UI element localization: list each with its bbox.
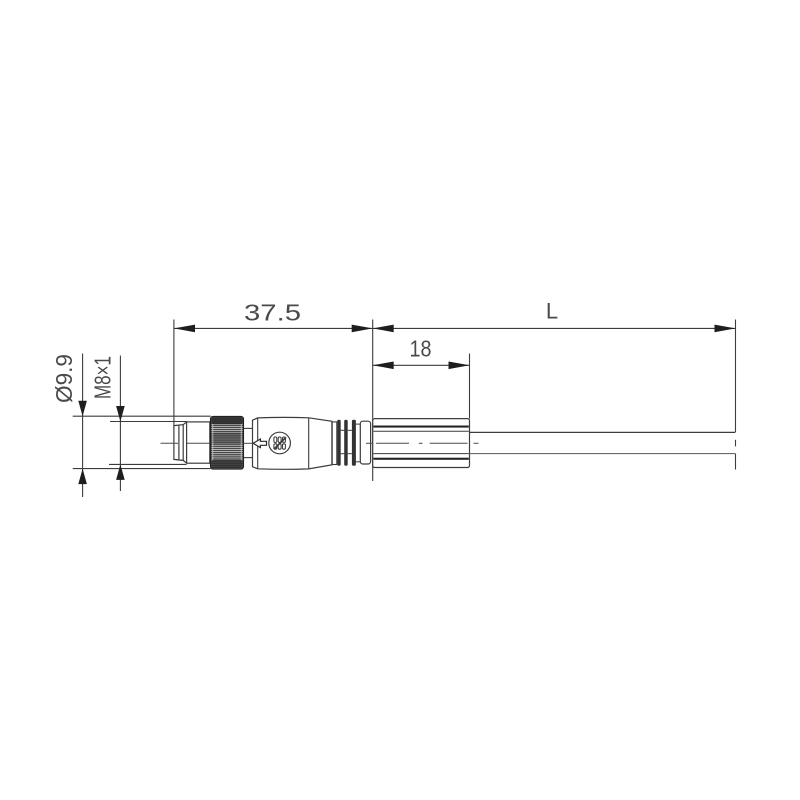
svg-text:L: L (546, 299, 558, 324)
svg-text:37.5: 37.5 (244, 300, 301, 326)
svg-text:M8×1: M8×1 (90, 356, 116, 399)
svg-text:Ø9.9: Ø9.9 (51, 354, 77, 403)
svg-text:18: 18 (410, 335, 432, 361)
